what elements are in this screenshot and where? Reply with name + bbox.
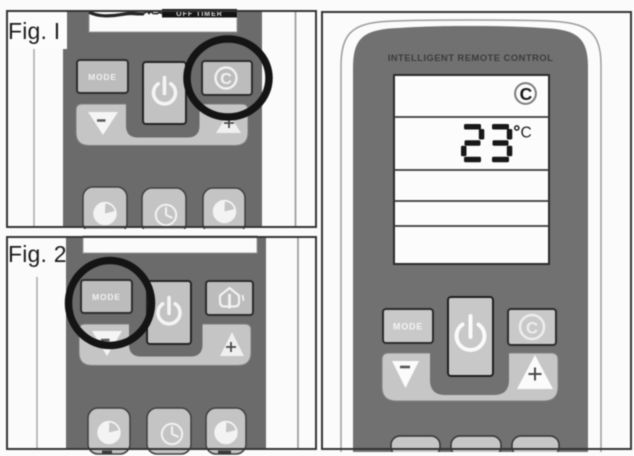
svg-text:C: C [220,71,232,88]
svg-text:C: C [526,319,538,338]
svg-text:Fig. 2: Fig. 2 [8,241,67,267]
svg-text:MODE: MODE [393,322,423,332]
svg-text:C: C [520,84,533,104]
svg-text:OFF TIMER: OFF TIMER [176,11,223,18]
svg-text:MODE: MODE [88,72,117,82]
svg-text:MODE: MODE [92,292,121,302]
svg-text:C: C [521,125,532,142]
svg-text:INTELLIGENT REMOTE CONTROL: INTELLIGENT REMOTE CONTROL [388,53,554,64]
svg-text:Fig. I: Fig. I [8,18,60,44]
